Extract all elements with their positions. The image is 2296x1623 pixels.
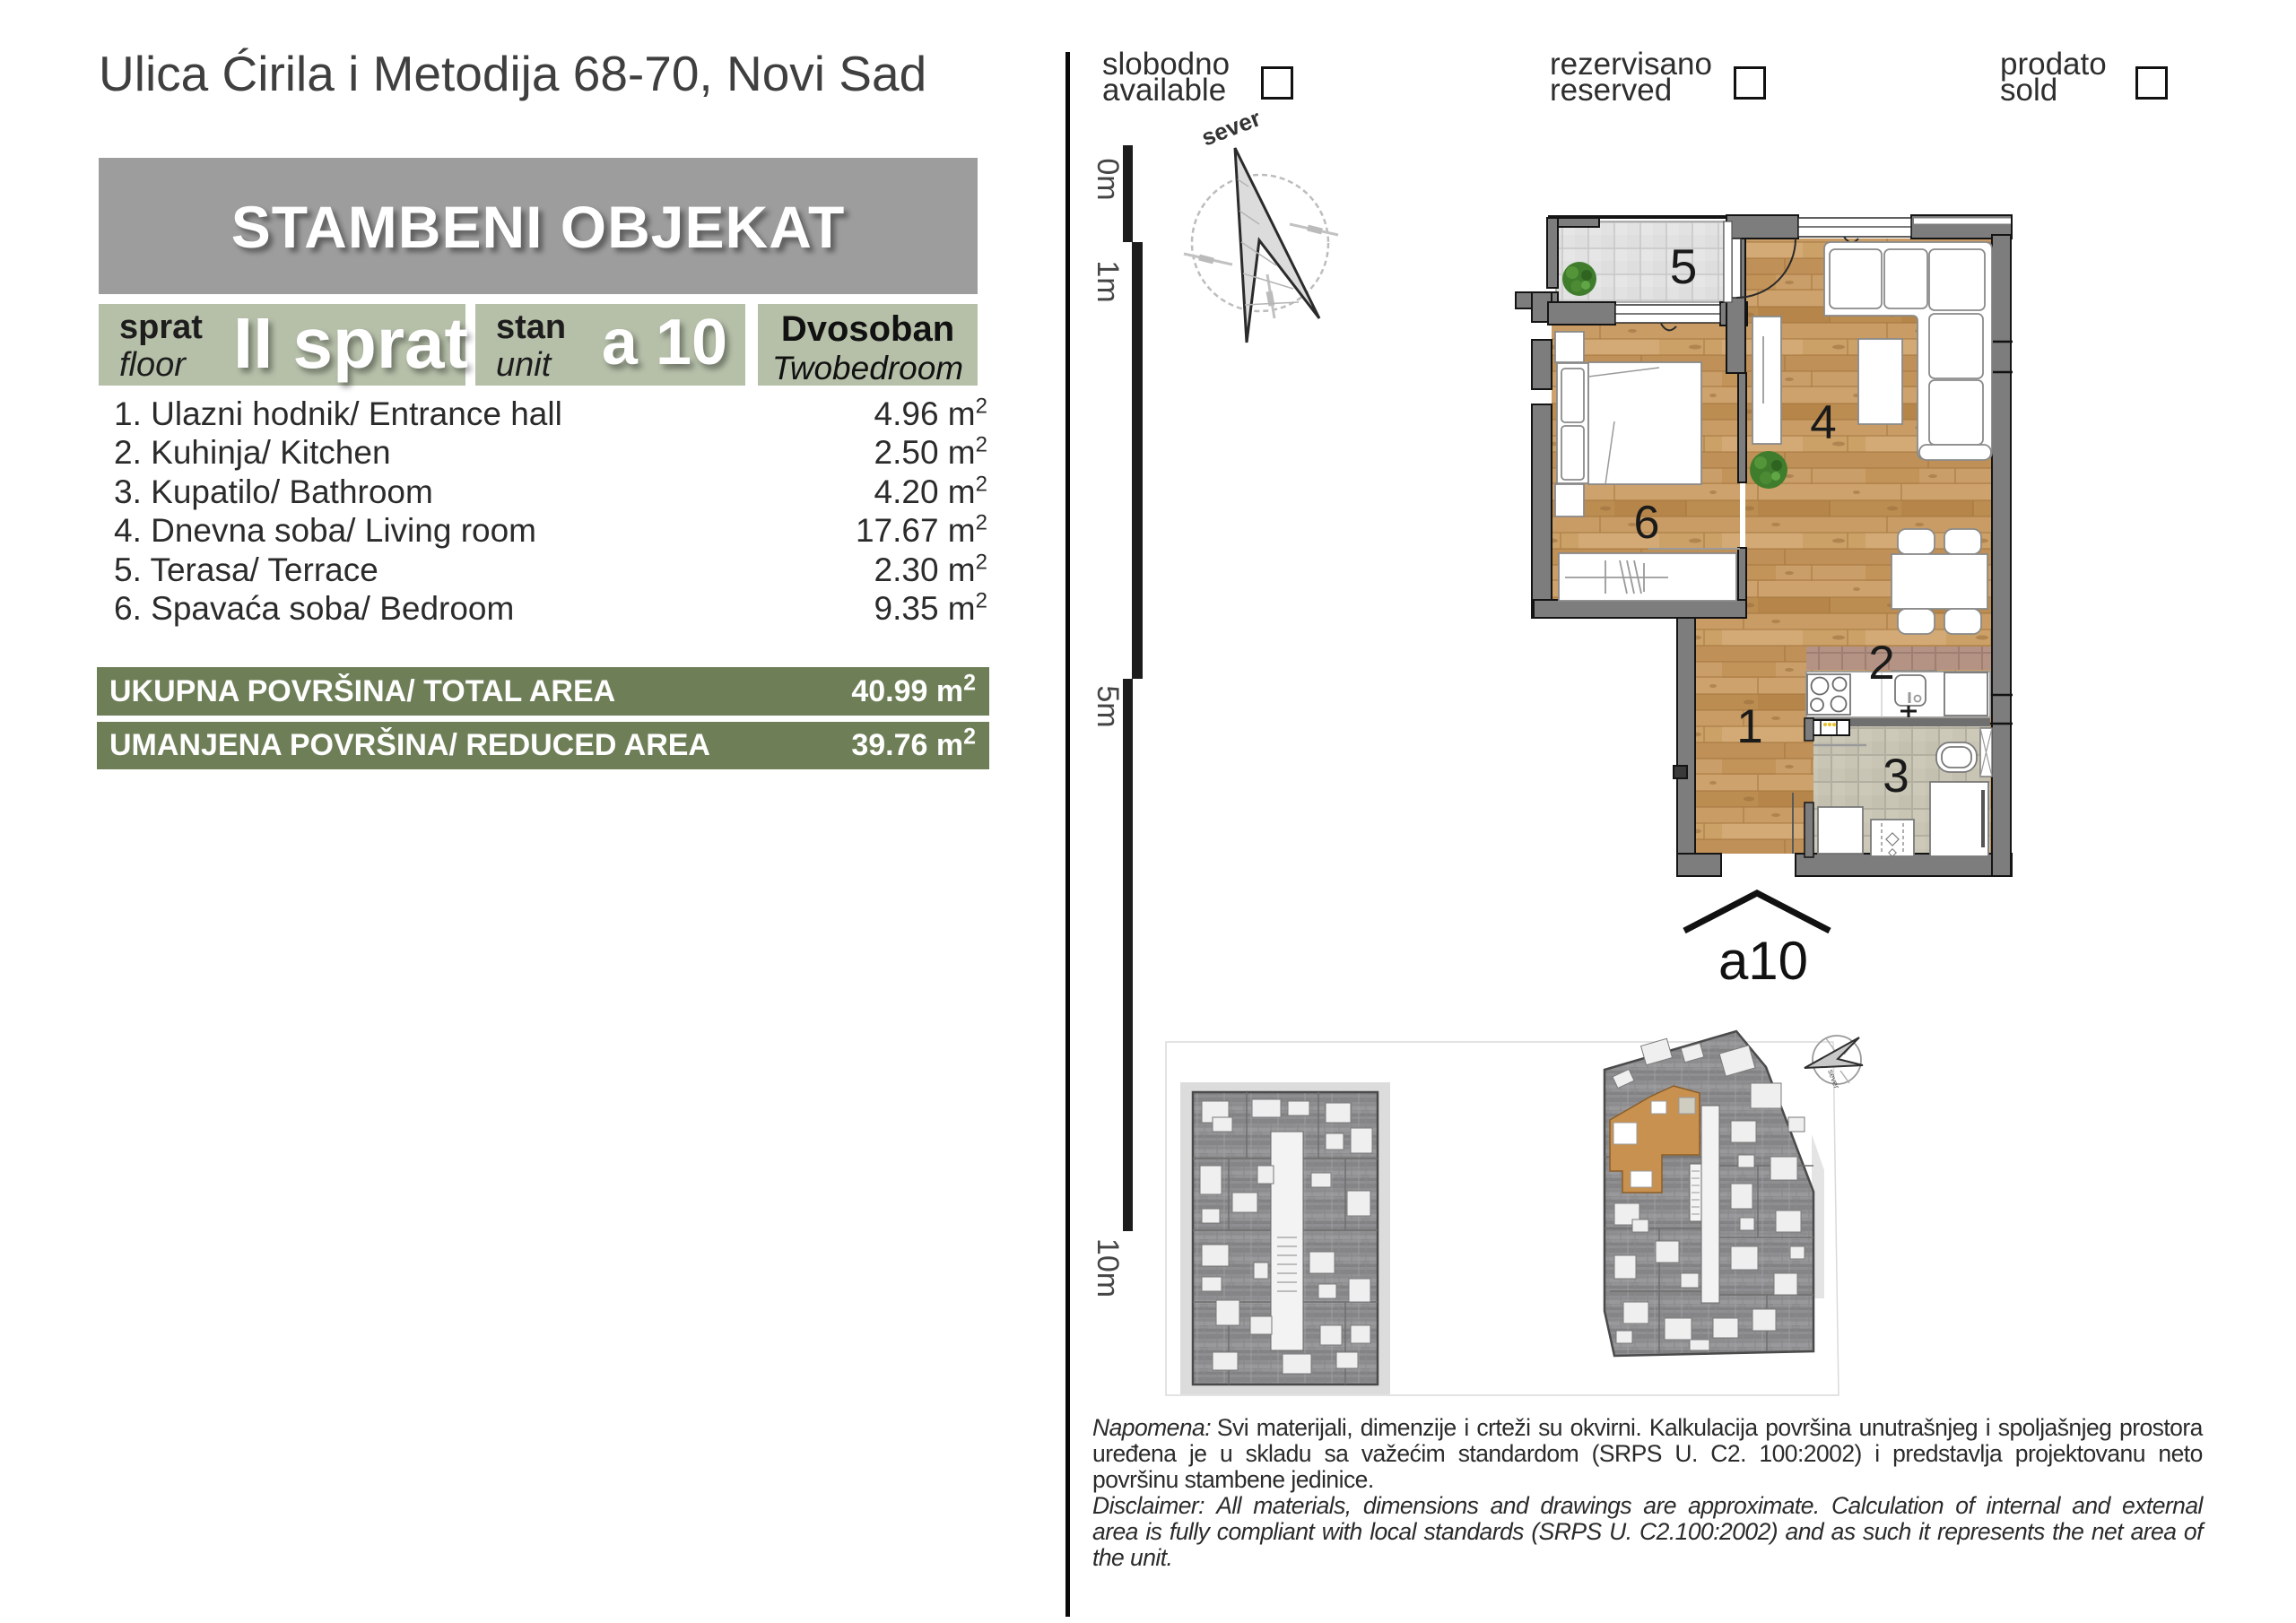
svg-text:a10: a10 bbox=[1718, 931, 1808, 991]
svg-text:3: 3 bbox=[1883, 750, 1909, 803]
svg-text:2: 2 bbox=[1868, 637, 1894, 690]
svg-text:5m: 5m bbox=[1091, 685, 1125, 727]
svg-text:5: 5 bbox=[1670, 239, 1698, 294]
svg-text:1: 1 bbox=[1736, 700, 1762, 753]
svg-text:10m: 10m bbox=[1091, 1238, 1125, 1298]
svg-text:sever: sever bbox=[1197, 104, 1264, 151]
svg-text:0m: 0m bbox=[1091, 158, 1125, 200]
svg-text:6: 6 bbox=[1634, 497, 1660, 549]
svg-text:1m: 1m bbox=[1091, 260, 1125, 302]
svg-text:sever: sever bbox=[1826, 1068, 1841, 1089]
svg-text:4: 4 bbox=[1810, 396, 1836, 449]
